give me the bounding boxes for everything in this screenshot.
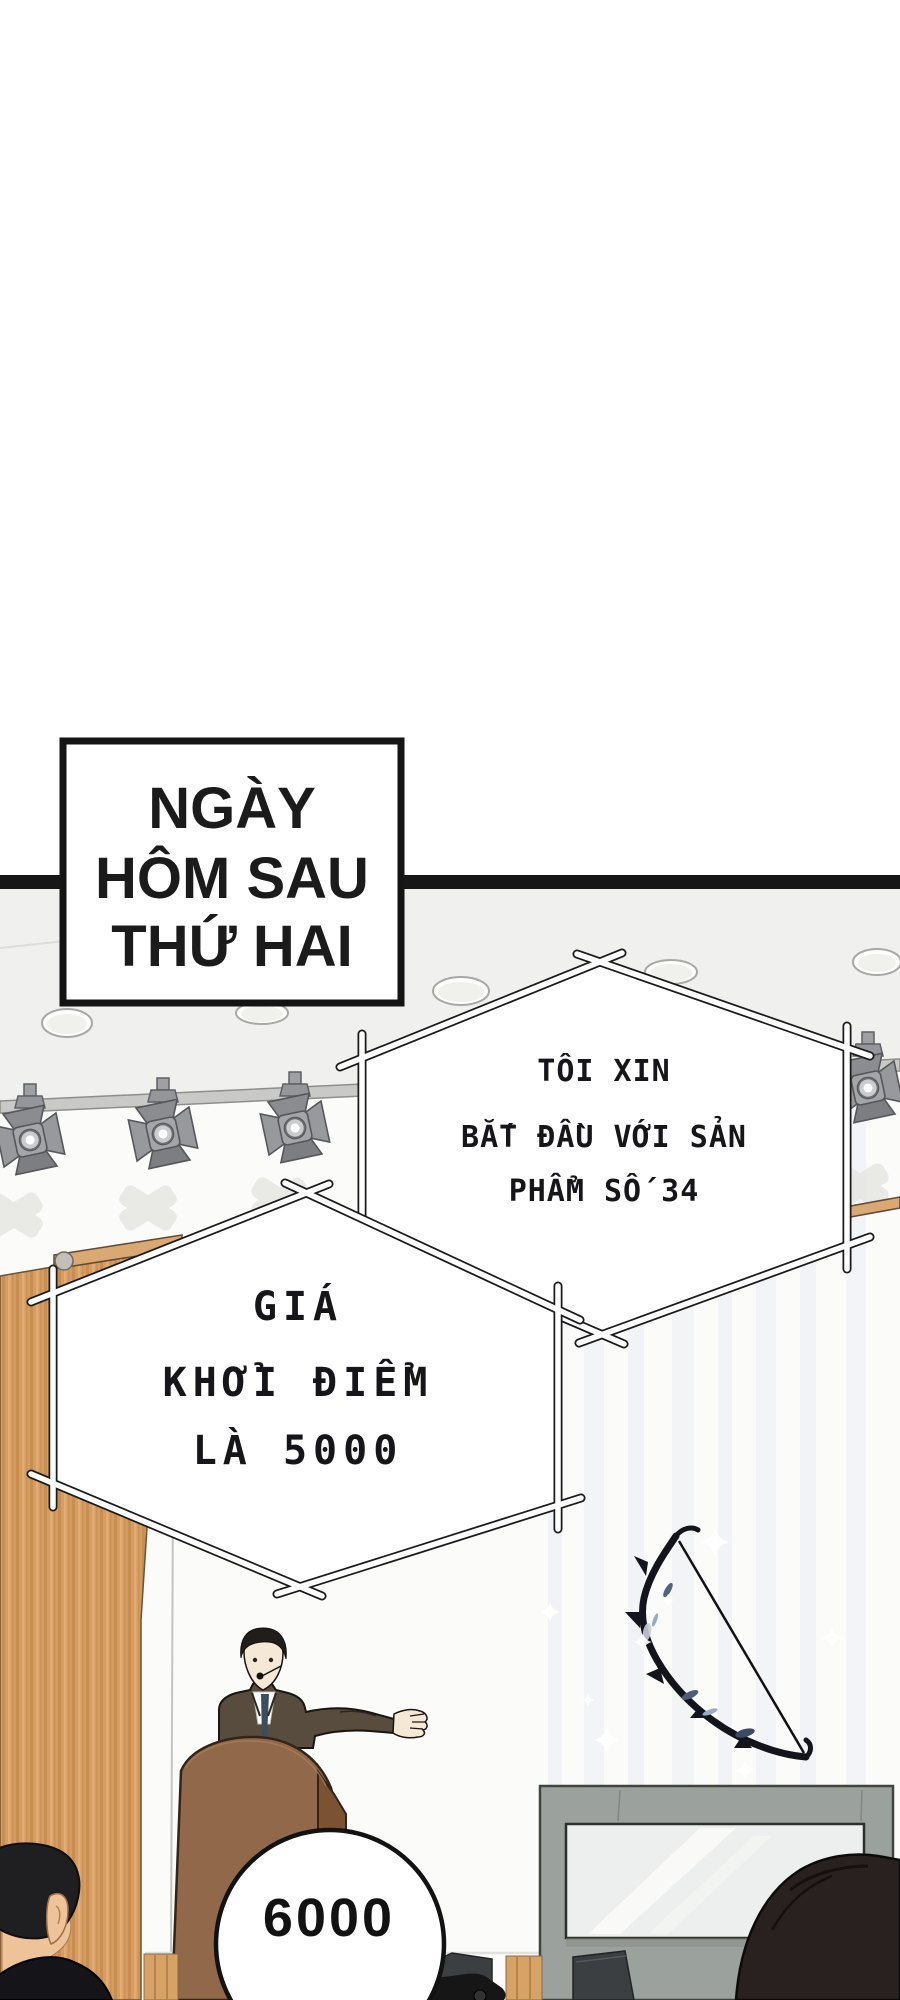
handrail-cap xyxy=(55,1252,73,1270)
eye-left xyxy=(253,1658,257,1662)
bid-amount: 6000 xyxy=(263,1888,395,1948)
comic-page: 6000 TÔI XIN BẮT ĐẦU VỚI SẢN PHẨM SỐ 34 xyxy=(0,0,900,2000)
bubble-price-line-2: KHỞI ĐIỂM xyxy=(163,1358,434,1406)
caption-box: NGÀY HÔM SAU THỨ HAI xyxy=(63,741,401,1003)
bubble-price-line-3: LÀ 5000 xyxy=(193,1426,404,1474)
caption-line-2: HÔM SAU xyxy=(95,846,369,911)
bubble-price-line-1: GIÁ xyxy=(253,1282,343,1330)
eye-right xyxy=(269,1658,273,1662)
bubble-product-line-2: BẮT ĐẦU VỚI SẢN xyxy=(461,1115,747,1155)
caption-line-3: THỨ HAI xyxy=(111,914,352,979)
caption-line-1: NGÀY xyxy=(148,776,316,841)
headset-mic xyxy=(257,1673,264,1680)
bubble-product-line-3: PHẨM SỐ 34 xyxy=(509,1172,700,1209)
bubble-product-line-1: TÔI XIN xyxy=(537,1052,670,1089)
